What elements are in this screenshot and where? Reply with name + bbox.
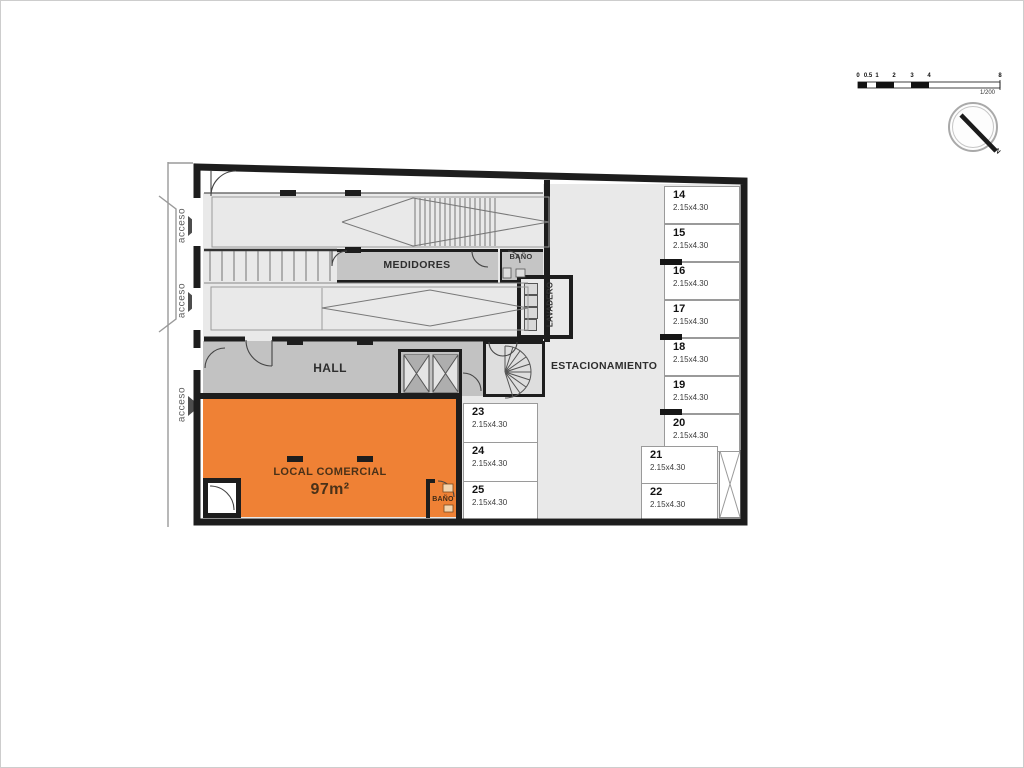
parking-space-number: 23 xyxy=(472,406,537,420)
parking-space-dim: 2.15x4.30 xyxy=(472,420,537,430)
scale-tick-05: 0.5 xyxy=(864,73,872,79)
parking-space-dim: 2.15x4.30 xyxy=(650,463,717,473)
parking-space-15: 15 2.15x4.30 xyxy=(664,224,740,262)
parking-space-dim: 2.15x4.30 xyxy=(673,393,739,403)
parking-space-number: 24 xyxy=(472,445,537,459)
parking-space-17: 17 2.15x4.30 xyxy=(664,300,740,338)
acceso-arrow-icons xyxy=(188,216,200,416)
lavadero-label: LAVADERO xyxy=(546,270,555,340)
parking-space-dim: 2.15x4.30 xyxy=(673,241,739,251)
parking-space-dim: 2.15x4.30 xyxy=(673,203,739,213)
parking-space-dim: 2.15x4.30 xyxy=(673,279,739,289)
north-needle-icon xyxy=(961,115,996,151)
wheel-stop xyxy=(660,334,682,340)
parking-space-number: 17 xyxy=(673,303,739,317)
acceso-label-1: acceso xyxy=(177,196,188,256)
access-bracket xyxy=(159,196,176,332)
local-area-label: 97m² xyxy=(230,481,430,499)
local-comercial-label: LOCAL COMERCIAL xyxy=(230,466,430,478)
parking-space-number: 18 xyxy=(673,341,739,355)
parking-space-23: 23 2.15x4.30 xyxy=(463,403,538,443)
parking-space-number: 21 xyxy=(650,449,717,463)
scale-tick-0: 0 xyxy=(856,73,859,79)
lavadero-machine xyxy=(524,307,538,319)
scale-tick-8: 8 xyxy=(998,73,1001,79)
medidores-label: MEDIDORES xyxy=(347,259,487,271)
banio-local-label: BAÑO xyxy=(428,496,458,503)
parking-space-18: 18 2.15x4.30 xyxy=(664,338,740,376)
scale-tick-3: 3 xyxy=(910,73,913,79)
scale-bar xyxy=(858,80,1000,90)
compass-icon xyxy=(949,103,997,151)
estacionamiento-label: ESTACIONAMIENTO xyxy=(551,360,657,372)
void-x-box xyxy=(719,450,741,518)
spiral-stair-room xyxy=(483,341,545,397)
parking-space-dim: 2.15x4.30 xyxy=(673,317,739,327)
parking-space-number: 25 xyxy=(472,484,537,498)
parking-space-number: 22 xyxy=(650,486,717,500)
parking-space-number: 14 xyxy=(673,189,739,203)
parking-space-number: 16 xyxy=(673,265,739,279)
hall-label: HALL xyxy=(260,361,400,375)
entry-strip xyxy=(203,176,543,193)
parking-space-24: 24 2.15x4.30 xyxy=(463,442,538,482)
parking-space-14: 14 2.15x4.30 xyxy=(664,186,740,224)
parking-space-22: 22 2.15x4.30 xyxy=(641,483,718,520)
parking-space-number: 20 xyxy=(673,417,739,431)
elevator-shaft xyxy=(398,349,462,396)
scale-tick-4: 4 xyxy=(927,73,930,79)
lavadero-machine xyxy=(524,295,538,307)
parking-space-dim: 2.15x4.30 xyxy=(472,498,537,508)
parking-space-dim: 2.15x4.30 xyxy=(673,431,739,441)
lavadero-machine xyxy=(524,319,537,331)
acceso-label-2: acceso xyxy=(177,271,188,331)
parking-space-dim: 2.15x4.30 xyxy=(472,459,537,469)
parking-space-number: 15 xyxy=(673,227,739,241)
parking-space-21: 21 2.15x4.30 xyxy=(641,446,718,484)
lavadero-machine xyxy=(524,283,538,295)
parking-space-dim: 2.15x4.30 xyxy=(673,355,739,365)
scale-tick-1: 1 xyxy=(875,73,878,79)
floor-plan-page: 14 2.15x4.30 15 2.15x4.30 16 2.15x4.30 1… xyxy=(0,0,1024,768)
parking-space-25: 25 2.15x4.30 xyxy=(463,481,538,520)
wheel-stop xyxy=(660,259,682,265)
north-label: N xyxy=(993,147,1001,155)
scale-tick-2: 2 xyxy=(892,73,895,79)
parking-space-number: 19 xyxy=(673,379,739,393)
banio-top-label: BAÑO xyxy=(500,252,542,261)
wheel-stop xyxy=(660,409,682,415)
parking-space-dim: 2.15x4.30 xyxy=(650,500,717,510)
parking-space-16: 16 2.15x4.30 xyxy=(664,262,740,300)
scale-ratio-label: 1/200 xyxy=(980,90,995,96)
acceso-label-3: acceso xyxy=(177,375,188,435)
